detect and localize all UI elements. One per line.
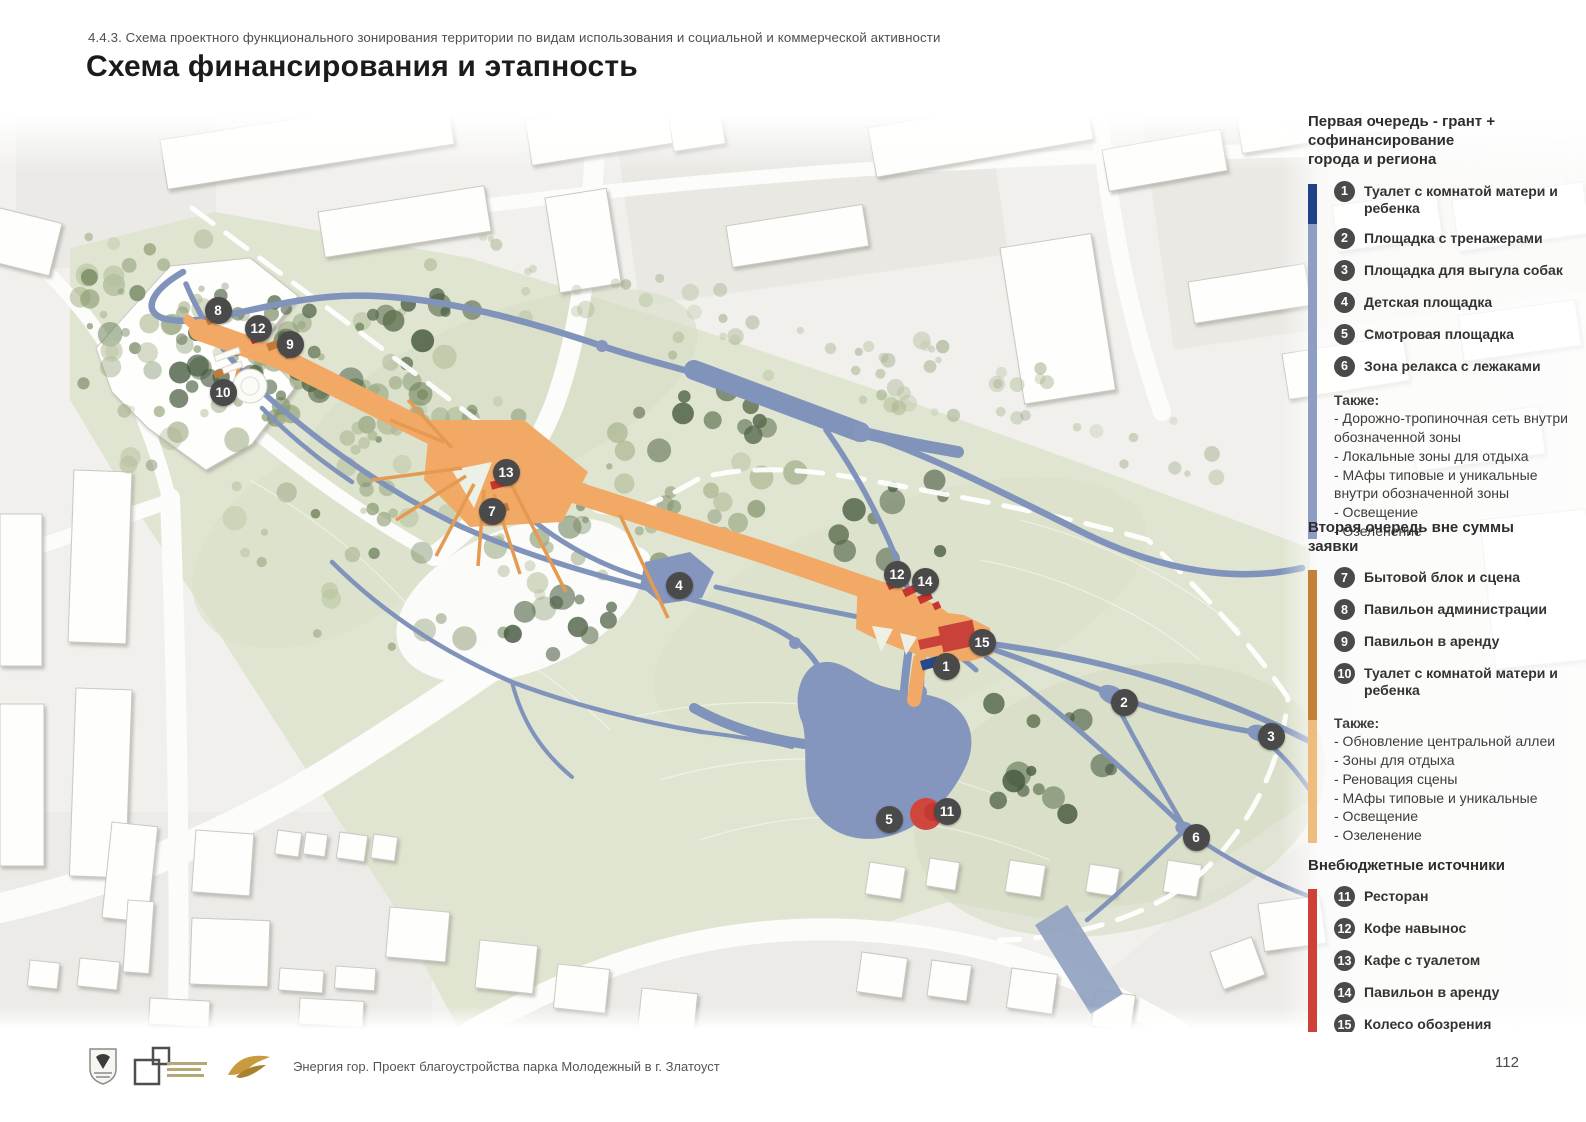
page-footer: Энергия гор. Проект благоустройства парк… xyxy=(0,1032,1586,1122)
page-title: Схема финансирования и этапность xyxy=(86,50,638,84)
footer-caption: Энергия гор. Проект благоустройства парк… xyxy=(293,1059,720,1074)
page-number: 112 xyxy=(1495,1054,1519,1071)
section-kicker: 4.4.3. Схема проектного функционального … xyxy=(88,30,941,45)
masterplan-map xyxy=(0,110,1586,1032)
rotunda xyxy=(233,369,267,403)
page: 4.4.3. Схема проектного функционального … xyxy=(0,0,1586,1122)
program-logo xyxy=(133,1046,211,1086)
coat-of-arms-logo xyxy=(88,1047,118,1085)
map-drawing xyxy=(0,110,1586,1032)
energiya-gor-bird-icon xyxy=(226,1051,272,1081)
